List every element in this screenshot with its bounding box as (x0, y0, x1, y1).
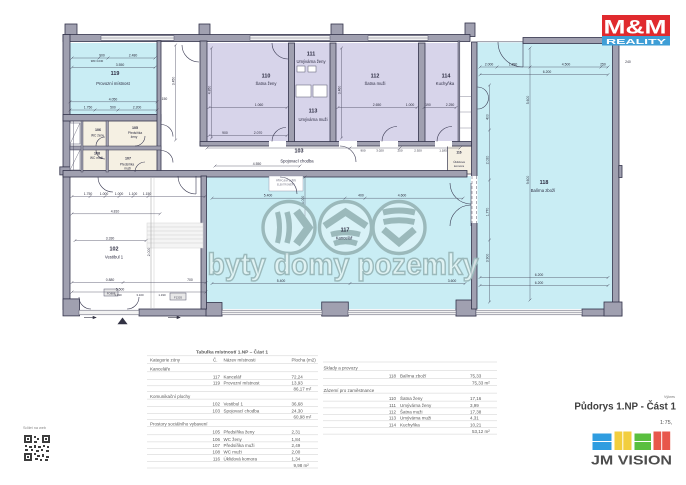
svg-text:2.200: 2.200 (133, 106, 142, 110)
svg-text:119: 119 (111, 71, 120, 77)
svg-text:WC ženy: WC ženy (91, 134, 104, 138)
svg-text:1.000: 1.000 (406, 103, 415, 107)
svg-text:2.000: 2.000 (147, 248, 151, 257)
svg-text:5.500: 5.500 (116, 288, 125, 292)
svg-text:1.750: 1.750 (84, 106, 93, 110)
svg-text:Výkres: Výkres (664, 395, 675, 399)
svg-text:103: 103 (212, 408, 220, 413)
svg-text:75,33: 75,33 (470, 373, 482, 378)
svg-text:3.100: 3.100 (136, 293, 144, 297)
svg-text:Umývárna ženy: Umývárna ženy (296, 59, 326, 64)
svg-text:0.880: 0.880 (106, 278, 115, 282)
svg-text:Prostory sociálního vybavení: Prostory sociálního vybavení (150, 422, 208, 427)
svg-text:118: 118 (540, 180, 549, 186)
svg-text:Tabulka místností 1.NP – Část: Tabulka místností 1.NP – Část 1 (196, 349, 268, 356)
svg-text:5.400: 5.400 (264, 194, 273, 198)
svg-text:Umývárna ženy: Umývárna ženy (400, 403, 432, 408)
svg-text:5.600: 5.600 (526, 96, 530, 105)
svg-text:113: 113 (309, 109, 318, 115)
svg-text:4.810: 4.810 (111, 209, 120, 213)
svg-text:4.850: 4.850 (207, 86, 211, 95)
svg-text:500: 500 (110, 106, 116, 110)
svg-text:3,99: 3,99 (470, 403, 479, 408)
svg-text:Kanceláře: Kanceláře (150, 367, 171, 372)
svg-text:1.060: 1.060 (255, 103, 264, 107)
svg-text:Půdorys 1.NP - Část 1: Půdorys 1.NP - Část 1 (574, 401, 676, 413)
svg-text:4.050: 4.050 (109, 98, 118, 102)
svg-text:900: 900 (222, 131, 228, 135)
svg-text:muži: muži (124, 167, 131, 171)
svg-text:10,21: 10,21 (470, 422, 482, 427)
svg-text:36,68: 36,68 (292, 402, 304, 407)
svg-text:119: 119 (213, 381, 221, 386)
svg-text:108: 108 (94, 152, 100, 156)
svg-text:112: 112 (371, 74, 380, 80)
svg-text:1.190: 1.190 (114, 293, 122, 297)
svg-text:2,00: 2,00 (292, 450, 301, 455)
svg-text:komora: komora (454, 164, 464, 168)
svg-text:1.000: 1.000 (100, 192, 109, 196)
svg-text:Plocha (m2): Plocha (m2) (292, 358, 317, 363)
svg-text:2.070: 2.070 (254, 131, 263, 135)
svg-text:111: 111 (307, 52, 315, 58)
svg-text:WC muži: WC muži (224, 450, 242, 455)
svg-text:Provozní místnost: Provozní místnost (224, 381, 261, 386)
svg-text:108: 108 (212, 450, 220, 455)
svg-text:6.200: 6.200 (535, 281, 544, 285)
svg-text:112: 112 (389, 409, 397, 414)
svg-text:17,38: 17,38 (470, 409, 482, 414)
svg-text:2,49: 2,49 (292, 443, 301, 448)
svg-text:400: 400 (485, 114, 489, 120)
svg-text:2,31: 2,31 (292, 430, 301, 435)
svg-text:1.100: 1.100 (129, 192, 138, 196)
svg-text:17,16: 17,16 (470, 396, 482, 401)
svg-text:9,98 m²: 9,98 m² (294, 463, 310, 468)
svg-text:Umývárna muži: Umývárna muži (298, 117, 327, 122)
svg-text:105: 105 (212, 430, 220, 435)
svg-text:4.550: 4.550 (253, 162, 262, 166)
svg-text:250: 250 (600, 63, 606, 67)
svg-text:1.880: 1.880 (509, 63, 518, 67)
svg-text:Kuchyňka: Kuchyňka (436, 81, 455, 86)
svg-text:103: 103 (295, 149, 304, 155)
svg-text:Balírna zboží: Balírna zboží (531, 188, 556, 193)
svg-text:1,34: 1,34 (292, 457, 301, 462)
svg-text:114: 114 (442, 74, 451, 80)
svg-text:110: 110 (389, 396, 397, 401)
svg-text:190: 190 (425, 103, 431, 107)
svg-text:Název místnosti: Název místnosti (224, 358, 256, 363)
svg-text:REALITY: REALITY (606, 37, 666, 46)
svg-text:116: 116 (213, 457, 221, 462)
svg-text:700: 700 (187, 278, 193, 282)
svg-text:24,30: 24,30 (292, 408, 304, 413)
svg-text:2.000: 2.000 (485, 63, 494, 67)
svg-text:Vestibul 1: Vestibul 1 (224, 402, 244, 407)
svg-text:WC ženy: WC ženy (224, 437, 243, 442)
svg-text:3.900: 3.900 (485, 254, 489, 263)
svg-text:400: 400 (358, 194, 364, 198)
svg-text:Spojovací chodba: Spojovací chodba (224, 408, 260, 413)
svg-text:111: 111 (389, 403, 396, 408)
svg-text:4,31: 4,31 (470, 416, 479, 421)
svg-text:Sdílet na web: Sdílet na web (23, 426, 46, 430)
svg-text:Šatna muži: Šatna muži (400, 408, 423, 414)
svg-text:117: 117 (341, 228, 350, 234)
svg-text:6.200: 6.200 (543, 70, 552, 74)
svg-text:250: 250 (397, 149, 402, 153)
svg-text:Úklidová komora: Úklidová komora (224, 456, 258, 462)
svg-text:9.600: 9.600 (526, 176, 530, 185)
svg-text:114: 114 (389, 422, 397, 427)
svg-text:M&M: M&M (604, 18, 667, 39)
svg-text:110: 110 (262, 74, 271, 80)
svg-text:Kategorie zóny: Kategorie zóny (150, 358, 181, 363)
svg-text:Kuchyňka: Kuchyňka (400, 422, 420, 427)
svg-text:72,24: 72,24 (292, 374, 304, 379)
svg-text:1,84: 1,84 (292, 437, 301, 442)
svg-text:2.480: 2.480 (129, 54, 138, 58)
svg-text:86,17 m²: 86,17 m² (294, 387, 312, 392)
svg-text:2.250: 2.250 (446, 103, 455, 107)
svg-text:102: 102 (110, 246, 119, 252)
svg-text:3.330: 3.330 (106, 236, 115, 240)
svg-text:6.200: 6.200 (535, 273, 544, 277)
svg-text:Kancelář: Kancelář (224, 374, 242, 379)
svg-text:900: 900 (360, 149, 365, 153)
svg-text:1.185: 1.185 (439, 149, 447, 153)
svg-text:900: 900 (99, 54, 105, 58)
svg-text:117: 117 (213, 374, 221, 379)
svg-text:3.450: 3.450 (171, 77, 175, 86)
svg-text:13,93: 13,93 (292, 381, 304, 386)
svg-text:60,98 m²: 60,98 m² (294, 414, 312, 419)
svg-text:105: 105 (132, 126, 138, 130)
svg-text:1.770: 1.770 (485, 208, 489, 217)
svg-text:106: 106 (95, 128, 101, 132)
svg-text:1:75,: 1:75, (660, 420, 673, 426)
svg-text:Č.: Č. (213, 357, 218, 363)
svg-text:Šatna muži: Šatna muži (365, 81, 386, 86)
svg-text:Sklady a provozy: Sklady a provozy (324, 365, 359, 370)
svg-text:JM VISION: JM VISION (591, 454, 672, 468)
svg-text:2.020: 2.020 (485, 156, 489, 165)
svg-text:3.020: 3.020 (376, 149, 384, 153)
svg-text:ELEKTROMĚRY: ELEKTROMĚRY (277, 184, 295, 187)
svg-text:Provozní místnost: Provozní místnost (96, 81, 130, 86)
svg-text:150: 150 (162, 97, 168, 101)
svg-text:240: 240 (625, 60, 631, 64)
svg-text:1.190: 1.190 (158, 293, 166, 297)
svg-text:113: 113 (389, 416, 397, 421)
svg-text:Vestibul 1: Vestibul 1 (105, 255, 124, 260)
svg-text:Šatna ženy: Šatna ženy (400, 395, 423, 401)
svg-text:2.650: 2.650 (373, 103, 382, 107)
svg-text:1.150: 1.150 (143, 192, 152, 196)
svg-text:Zázemí pro zaměstnance: Zázemí pro zaměstnance (324, 388, 375, 393)
svg-text:116: 116 (456, 151, 461, 155)
svg-text:107: 107 (212, 443, 220, 448)
svg-text:53,12 m²: 53,12 m² (472, 429, 490, 434)
svg-text:Kancelář: Kancelář (336, 236, 353, 241)
svg-text:ženy: ženy (131, 135, 138, 139)
svg-text:4.500: 4.500 (562, 63, 571, 67)
svg-text:107: 107 (125, 156, 131, 160)
svg-text:2.920: 2.920 (414, 149, 422, 153)
svg-text:980 3.030: 980 3.030 (91, 59, 104, 63)
svg-text:Umývárna muži: Umývárna muži (400, 416, 431, 421)
svg-text:118: 118 (389, 373, 397, 378)
svg-text:Balírna zboží: Balírna zboží (400, 373, 427, 378)
svg-text:FO888: FO888 (107, 292, 116, 296)
svg-text:Předsíňka muži: Předsíňka muži (224, 443, 255, 448)
svg-text:3.550: 3.550 (116, 63, 125, 67)
svg-text:4.600: 4.600 (398, 194, 407, 198)
svg-text:1.000: 1.000 (115, 192, 124, 196)
svg-text:Komunikační plochy: Komunikační plochy (150, 394, 191, 399)
svg-text:Předsíňka ženy: Předsíňka ženy (224, 430, 256, 435)
svg-text:102: 102 (212, 402, 220, 407)
svg-text:75,33 m²: 75,33 m² (472, 381, 490, 386)
svg-text:F1303: F1303 (174, 296, 182, 300)
svg-text:WC muži: WC muži (90, 156, 103, 160)
svg-text:Šatna ženy: Šatna ženy (256, 81, 278, 86)
svg-text:1.750: 1.750 (84, 192, 93, 196)
svg-text:PŘÍPOJNÁ SKŘÍŇ: PŘÍPOJNÁ SKŘÍŇ (276, 180, 296, 183)
svg-text:3.460: 3.460 (337, 86, 341, 95)
svg-text:106: 106 (212, 437, 220, 442)
svg-text:byty domy pozemky: byty domy pozemky (208, 247, 480, 282)
svg-text:Spojovací chodba: Spojovací chodba (280, 158, 314, 163)
